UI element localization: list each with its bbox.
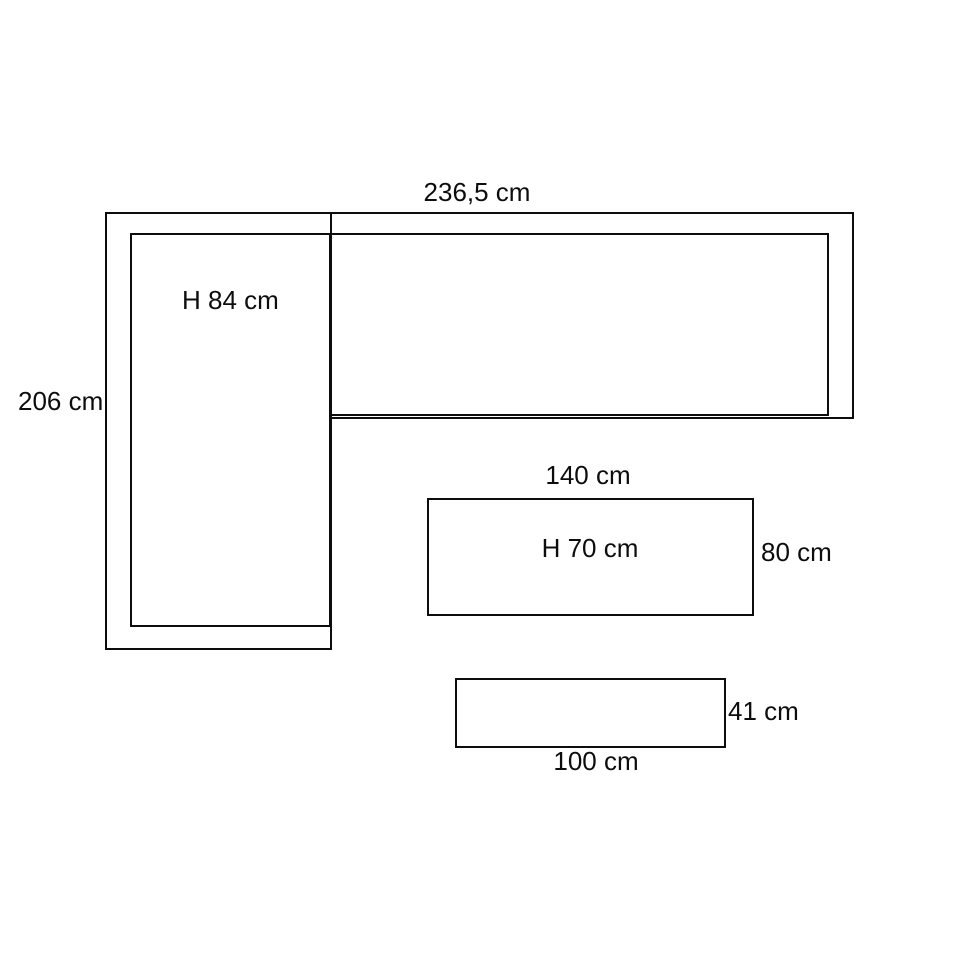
ottoman-depth-label: 41 cm [728,697,799,726]
corner-sofa-depth-label: 206 cm [18,387,103,416]
ottoman-width-label: 100 cm [553,747,638,776]
diagram-canvas [0,0,960,960]
furniture-dimension-diagram: 236,5 cm 206 cm H 84 cm 140 cm H 70 cm 8… [0,0,960,960]
corner-sofa-width-label: 236,5 cm [424,178,531,207]
ottoman-outline [456,679,725,747]
corner-sofa-height-label: H 84 cm [182,286,279,315]
bench-depth-label: 80 cm [761,538,832,567]
bench-height-label: H 70 cm [542,534,639,563]
bench-width-label: 140 cm [545,461,630,490]
corner-sofa-top-seat-inner [331,234,828,415]
corner-sofa-outline [106,213,853,649]
